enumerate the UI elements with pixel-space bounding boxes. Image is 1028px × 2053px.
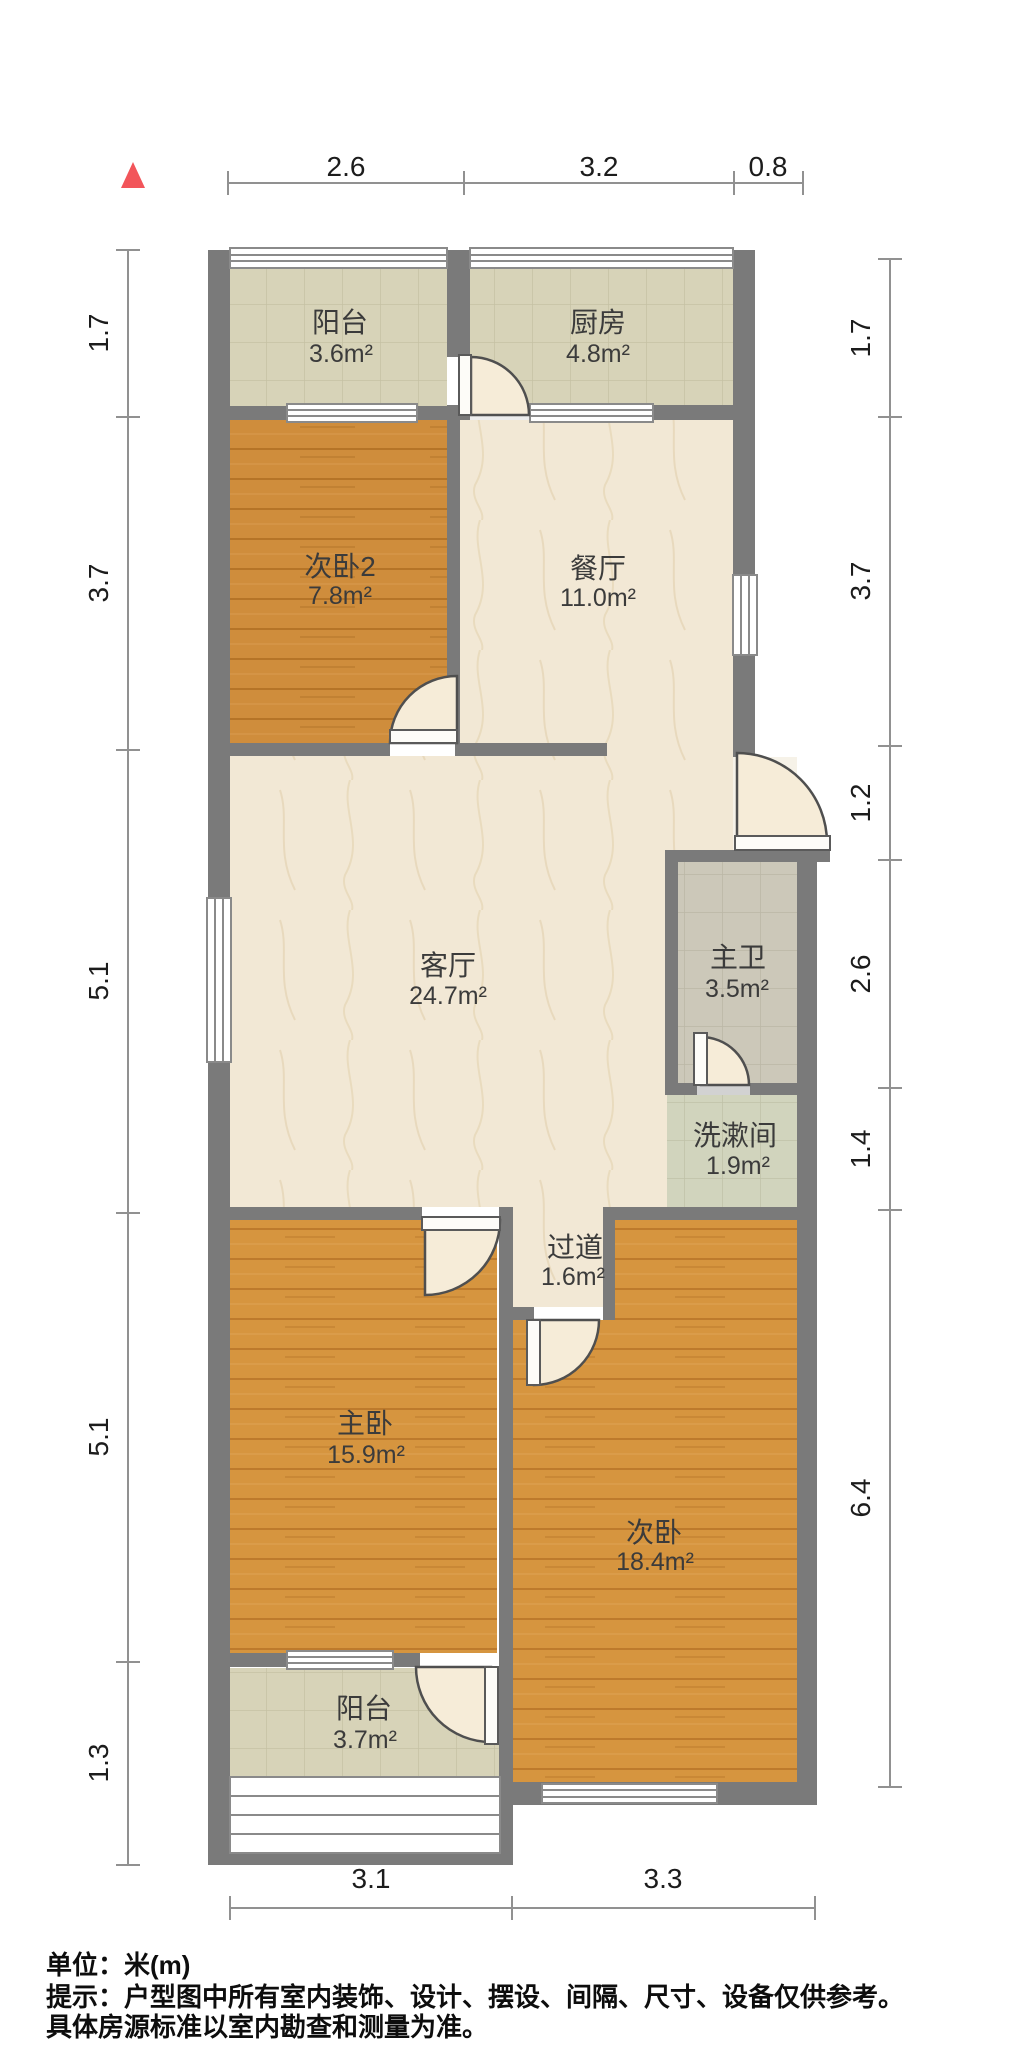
footer-unit: 单位：米(m)	[46, 1950, 190, 1980]
dim-right-5: 1.4	[845, 1130, 876, 1169]
room-balcony-bottom-area: 3.7m²	[333, 1726, 397, 1754]
room-bedroom-area: 18.4m²	[616, 1548, 694, 1576]
kitchen-window	[470, 248, 733, 268]
living-side-window	[207, 898, 231, 1062]
bedroom-window	[542, 1784, 717, 1803]
room-living-area: 24.7m²	[409, 982, 487, 1010]
room-balcony-top-floor	[230, 268, 447, 408]
kitchen-pass-window	[530, 404, 653, 422]
dim-top-2: 3.2	[580, 151, 619, 182]
dim-left-3: 5.1	[83, 962, 114, 1001]
footer: 单位：米(m) 提示：户型图中所有室内装饰、设计、摆设、间隔、尺寸、设备仅供参考…	[46, 1950, 904, 2042]
dim-bottom-2: 3.3	[644, 1863, 683, 1894]
dimension-right: 1.7 3.7 1.2 2.6 1.4 6.4	[845, 259, 902, 1787]
north-arrow-icon	[121, 162, 145, 188]
room-bedroom-name: 次卧	[626, 1517, 682, 1548]
dim-top-3: 0.8	[749, 151, 788, 182]
room-washroom-floor	[667, 1095, 797, 1207]
dimension-left: 1.7 3.7 5.1 5.1 1.3	[83, 250, 140, 1865]
dimension-top: 2.6 3.2 0.8	[228, 151, 803, 195]
balcony-top-window	[230, 248, 447, 268]
dim-right-4: 2.6	[845, 955, 876, 994]
room-washroom-name: 洗漱间	[693, 1120, 777, 1151]
room-hallway-name: 过道	[547, 1232, 603, 1263]
room-balcony-bottom-name: 阳台	[336, 1693, 392, 1724]
room-dining-name: 餐厅	[570, 553, 626, 584]
balcony-bottom-railing	[230, 1777, 500, 1853]
dim-left-4: 5.1	[83, 1418, 114, 1457]
dim-right-3: 1.2	[845, 784, 876, 823]
dim-right-2: 3.7	[845, 562, 876, 601]
room-bedroom2-name: 次卧2	[304, 551, 376, 582]
dim-left-5: 1.3	[83, 1744, 114, 1783]
dim-bottom-1: 3.1	[352, 1863, 391, 1894]
room-master-bedroom-area: 15.9m²	[327, 1441, 405, 1469]
room-master-bath-area: 3.5m²	[705, 975, 769, 1003]
room-dining-area: 11.0m²	[560, 584, 636, 612]
room-living-name: 客厅	[420, 950, 476, 981]
room-hallway-area: 1.6m²	[541, 1263, 605, 1291]
room-bedroom2-area: 7.8m²	[308, 582, 372, 610]
room-kitchen-area: 4.8m²	[566, 340, 630, 368]
room-balcony-top-name: 阳台	[312, 307, 368, 338]
dimension-bottom: 3.1 3.3	[230, 1863, 815, 1920]
dining-side-window	[733, 575, 757, 655]
room-washroom-area: 1.9m²	[706, 1152, 770, 1180]
dim-left-1: 1.7	[83, 314, 114, 353]
dim-left-2: 3.7	[83, 564, 114, 603]
dim-right-6: 6.4	[845, 1479, 876, 1518]
floors	[230, 268, 797, 1782]
master-bedroom-window	[287, 1651, 393, 1669]
footer-tip-line2: 具体房源标准以室内勘查和测量为准。	[46, 2012, 488, 2042]
footer-tip-line1: 提示：户型图中所有室内装饰、设计、摆设、间隔、尺寸、设备仅供参考。	[46, 1982, 904, 2012]
floor-plan-canvas: 阳台 3.6m² 厨房 4.8m² 次卧2 7.8m² 餐厅 11.0m² 客厅…	[0, 0, 1028, 2048]
room-master-bath-name: 主卫	[710, 942, 766, 973]
dim-right-1: 1.7	[845, 319, 876, 358]
room-kitchen-name: 厨房	[570, 307, 626, 338]
dim-top-1: 2.6	[327, 151, 366, 182]
entry-door	[735, 753, 830, 850]
bedroom2-window	[287, 404, 417, 422]
room-master-bedroom-name: 主卧	[337, 1408, 393, 1439]
floor-plan-page: 阳台 3.6m² 厨房 4.8m² 次卧2 7.8m² 餐厅 11.0m² 客厅…	[0, 0, 1028, 2048]
room-balcony-top-area: 3.6m²	[309, 340, 373, 368]
